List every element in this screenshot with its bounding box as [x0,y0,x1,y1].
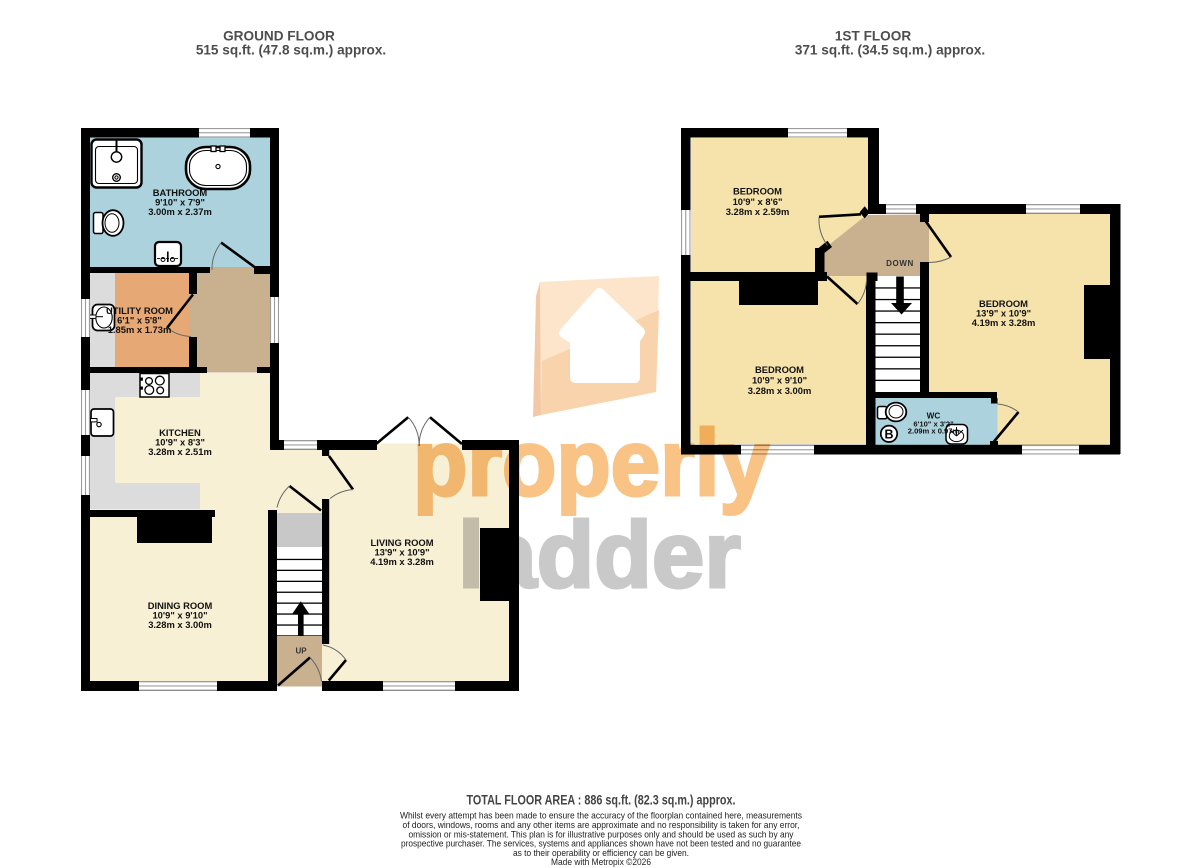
svg-text:TOTAL FLOOR AREA : 886 sq.ft.: TOTAL FLOOR AREA : 886 sq.ft. (82.3 sq.m… [467,793,736,808]
svg-text:Made with Metropix ©2026: Made with Metropix ©2026 [551,856,651,867]
svg-text:3.28m x 3.00m: 3.28m x 3.00m [748,385,812,396]
svg-text:3.00m x 2.37m: 3.00m x 2.37m [148,206,212,217]
svg-text:UP: UP [295,647,307,656]
svg-text:3.28m x 3.00m: 3.28m x 3.00m [148,619,212,630]
svg-text:3.28m x 2.51m: 3.28m x 2.51m [148,446,212,457]
svg-text:371 sq.ft. (34.5 sq.m.) approx: 371 sq.ft. (34.5 sq.m.) approx. [795,42,985,57]
svg-text:515 sq.ft. (47.8 sq.m.) approx: 515 sq.ft. (47.8 sq.m.) approx. [196,42,386,57]
svg-text:B: B [884,427,893,441]
svg-text:4.19m x 3.28m: 4.19m x 3.28m [972,317,1036,328]
svg-text:10'9" x 9'10": 10'9" x 9'10" [752,375,807,386]
svg-text:1.85m x 1.73m: 1.85m x 1.73m [108,324,172,335]
svg-text:GROUND FLOOR: GROUND FLOOR [223,29,335,44]
svg-text:4.19m x 3.28m: 4.19m x 3.28m [370,556,434,567]
svg-text:1ST FLOOR: 1ST FLOOR [835,29,911,44]
svg-text:BEDROOM: BEDROOM [733,185,782,196]
svg-text:BEDROOM: BEDROOM [755,364,804,375]
svg-text:ladder: ladder [458,502,741,607]
svg-text:2.09m x 0.97m: 2.09m x 0.97m [908,427,960,436]
svg-text:DOWN: DOWN [886,259,914,268]
svg-text:3.28m x 2.59m: 3.28m x 2.59m [726,206,790,217]
svg-text:10'9" x 8'6": 10'9" x 8'6" [733,196,783,207]
svg-text:properly: properly [413,410,769,515]
